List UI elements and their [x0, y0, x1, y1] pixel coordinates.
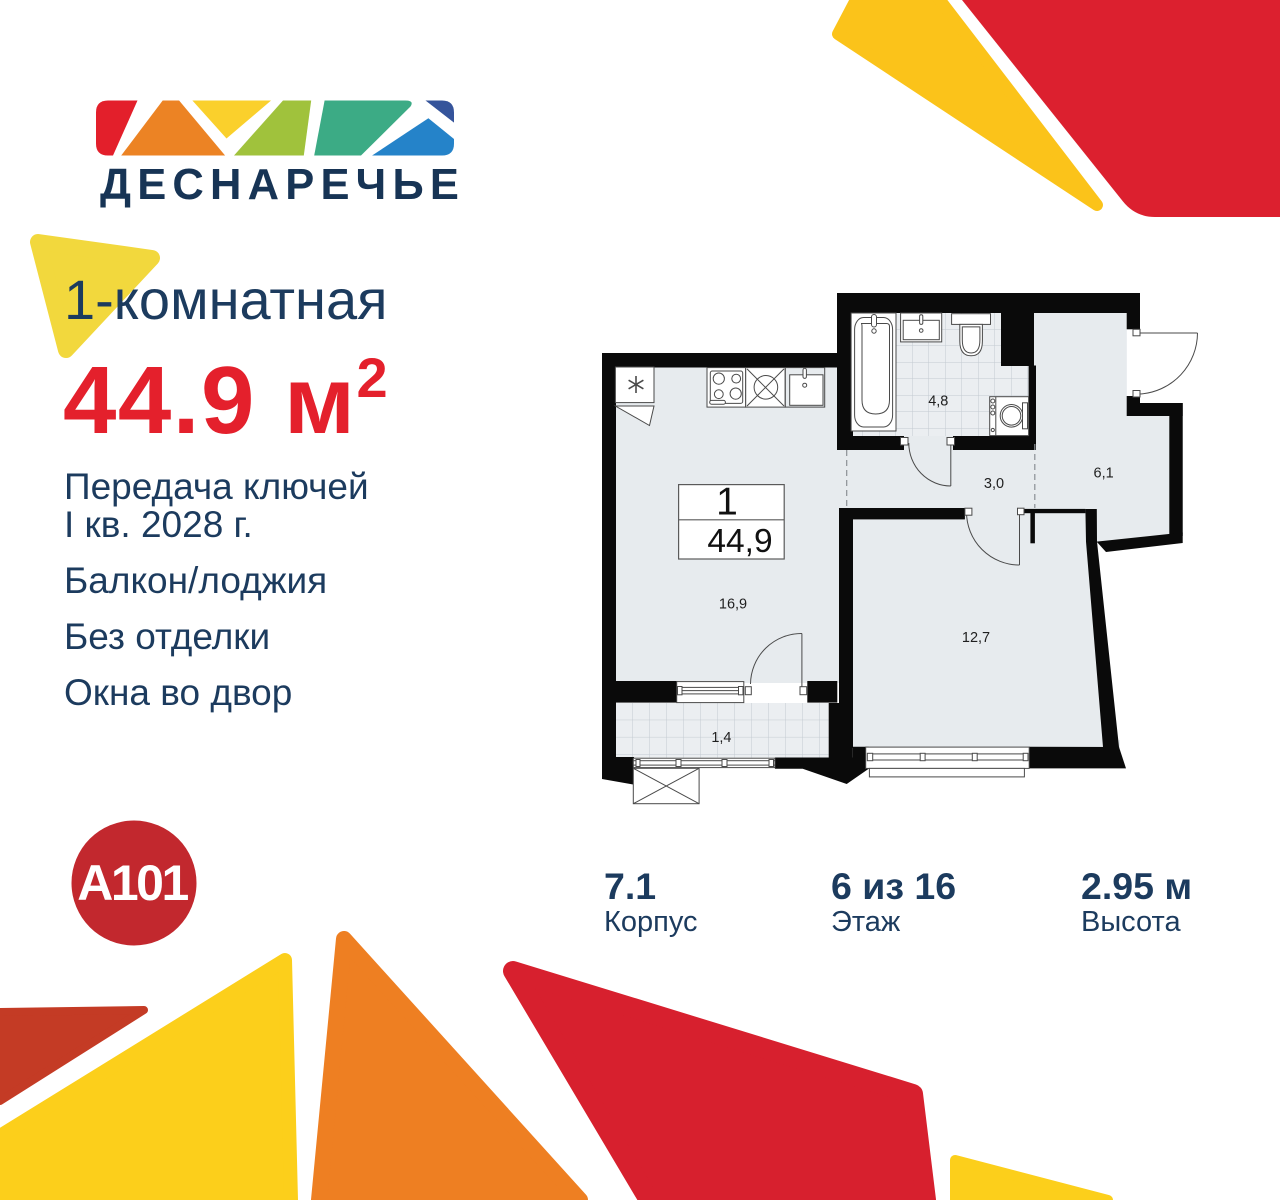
- svg-text:44.9 м2: 44.9 м2: [63, 346, 389, 454]
- svg-text:6 из 16: 6 из 16: [831, 865, 956, 907]
- svg-text:ДЕСНАРЕЧЬЕ: ДЕСНАРЕЧЬЕ: [100, 161, 465, 209]
- svg-text:Окна во двор: Окна во двор: [64, 672, 292, 713]
- svg-text:Корпус: Корпус: [604, 906, 698, 938]
- svg-text:Балкон/лоджия: Балкон/лоджия: [64, 560, 327, 601]
- svg-text:2.95 м: 2.95 м: [1081, 865, 1192, 907]
- svg-text:6,1: 6,1: [1094, 466, 1114, 482]
- svg-text:1: 1: [716, 481, 738, 524]
- svg-text:Без отделки: Без отделки: [64, 616, 270, 657]
- svg-text:12,7: 12,7: [962, 630, 990, 646]
- svg-text:Этаж: Этаж: [831, 906, 901, 938]
- svg-text:Передача ключей: Передача ключей: [64, 466, 369, 507]
- svg-text:7.1: 7.1: [604, 865, 656, 907]
- svg-text:4,8: 4,8: [928, 393, 948, 409]
- svg-text:Высота: Высота: [1081, 906, 1181, 938]
- svg-text:44,9: 44,9: [707, 523, 772, 560]
- svg-text:3,0: 3,0: [984, 476, 1004, 492]
- svg-text:A101: A101: [77, 855, 188, 911]
- svg-text:1-комнатная: 1-комнатная: [64, 268, 387, 331]
- svg-text:I кв. 2028 г.: I кв. 2028 г.: [64, 504, 253, 545]
- svg-text:1,4: 1,4: [711, 730, 731, 746]
- svg-text:16,9: 16,9: [719, 596, 747, 612]
